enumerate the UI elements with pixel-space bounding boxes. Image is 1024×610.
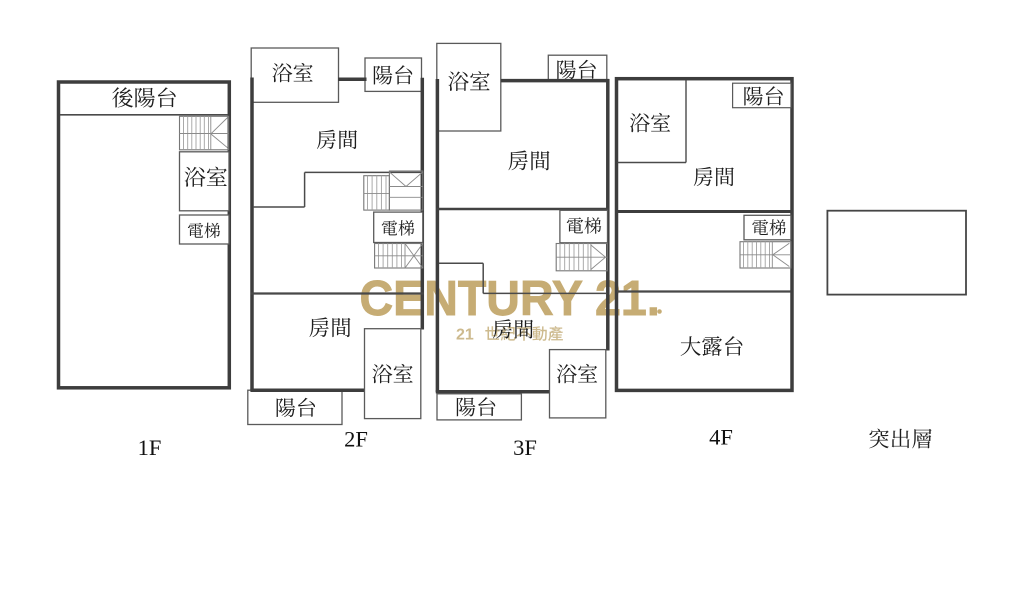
svg-text:4F: 4F <box>709 425 733 450</box>
svg-text:1F: 1F <box>138 435 162 460</box>
svg-text:CENTURY 21.: CENTURY 21. <box>360 272 660 326</box>
svg-text:21: 21 <box>456 327 474 344</box>
svg-text:2F: 2F <box>344 427 368 452</box>
svg-text:3F: 3F <box>513 435 537 460</box>
